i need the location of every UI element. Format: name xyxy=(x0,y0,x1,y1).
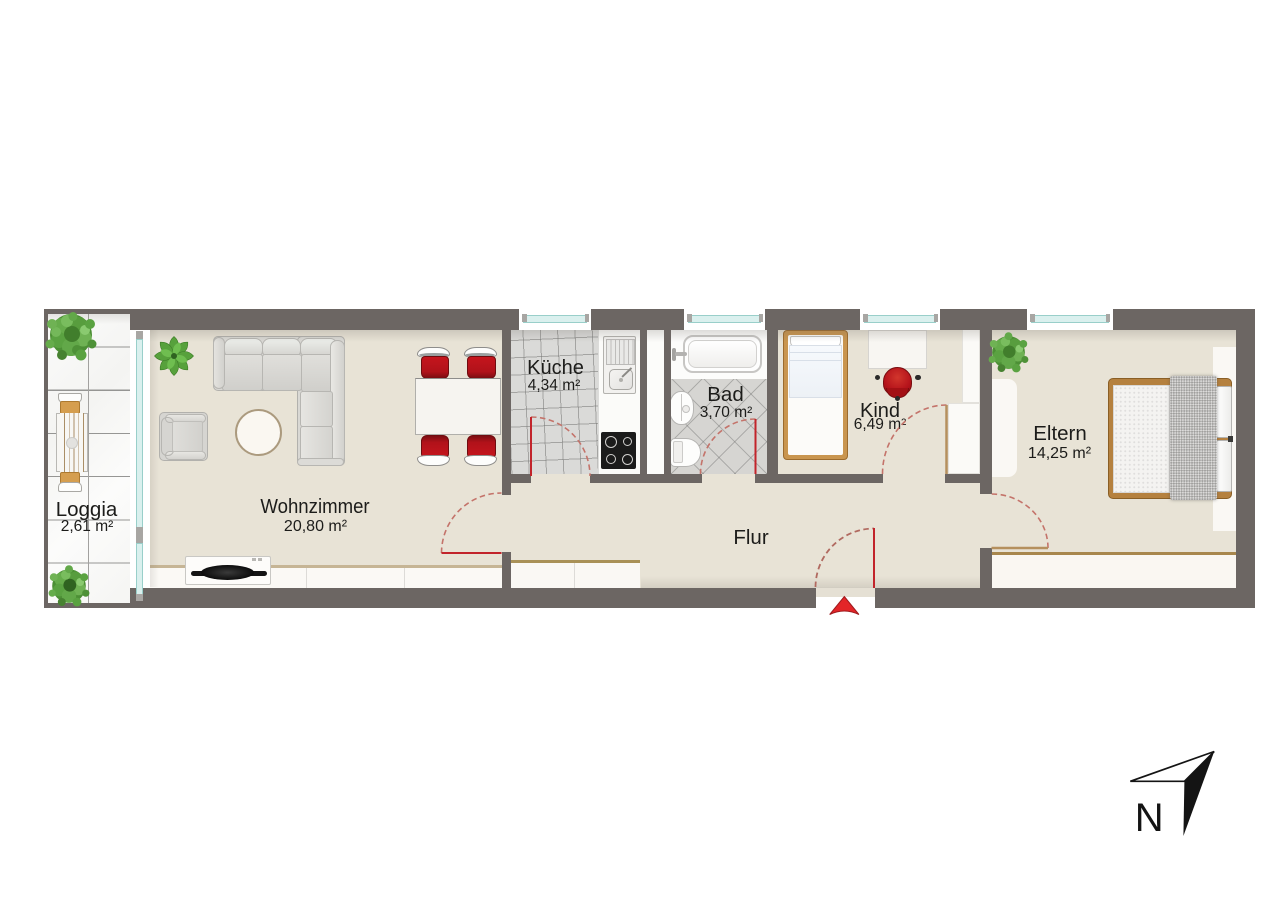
svg-text:N: N xyxy=(1135,796,1164,840)
